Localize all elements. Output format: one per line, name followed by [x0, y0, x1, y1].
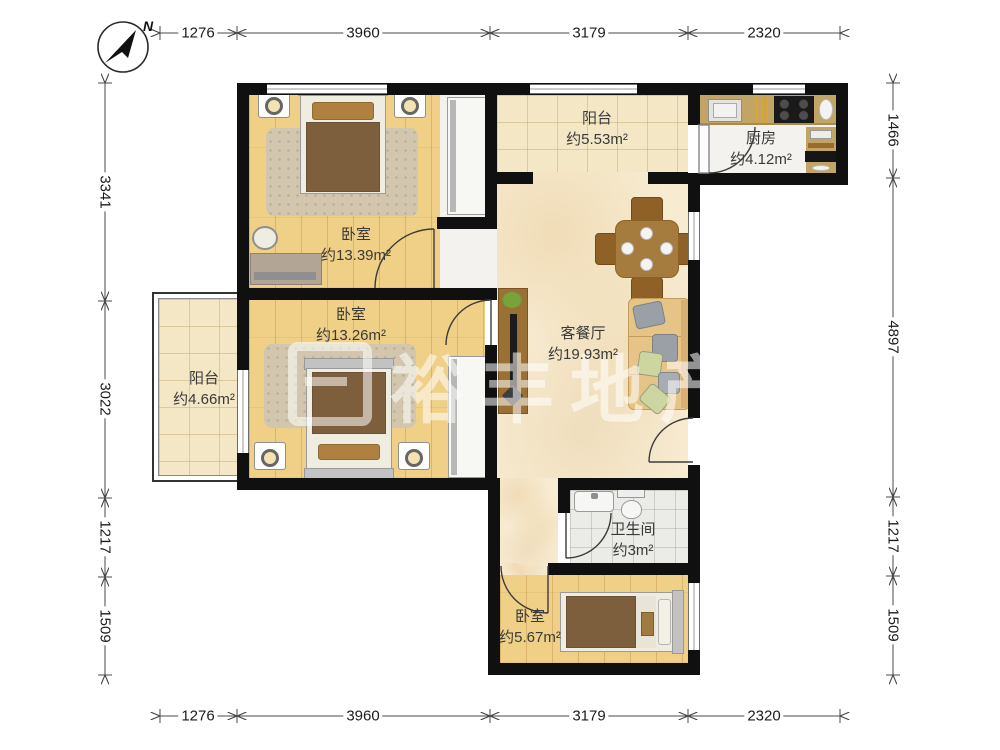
lamp-icon [261, 449, 279, 467]
dim-label: 2320 [744, 708, 783, 725]
room-name: 卫生间 [563, 519, 703, 540]
bed-blanket [306, 122, 380, 192]
plate-icon [660, 242, 673, 255]
dim-label: 1466 [885, 110, 902, 149]
wall [648, 172, 688, 184]
dim-label: 4897 [885, 317, 902, 356]
compass-north-label: N [143, 18, 154, 34]
toilet-bowl [621, 500, 642, 519]
room-label-bathroom: 卫生间 约3m² [563, 519, 703, 561]
dim-label: 1509 [97, 606, 114, 645]
room-area: 约13.26m² [281, 325, 421, 346]
bed-pillow [318, 444, 380, 460]
room-area: 约3m² [563, 540, 703, 561]
lamp-icon [265, 97, 283, 115]
wall [485, 95, 497, 229]
wall [558, 490, 570, 513]
door-opening-entry [688, 418, 700, 465]
floor-plan: N 1276 3960 3179 2320 1276 3960 3179 232… [0, 0, 1000, 750]
room-name: 客餐厅 [513, 323, 653, 344]
wall [488, 663, 700, 675]
hallway-floor-2 [500, 563, 548, 575]
dim-label: 3022 [97, 379, 114, 418]
utensils-icon [756, 98, 769, 123]
room-name: 阳台 [134, 368, 274, 389]
plate-icon [640, 258, 653, 271]
room-label-balcony-top: 阳台 约5.53m² [527, 108, 667, 150]
dish-icon [819, 99, 833, 120]
wall [548, 563, 700, 575]
wall [485, 345, 497, 480]
room-name: 卧室 [281, 304, 421, 325]
room-name: 卧室 [460, 606, 600, 627]
bed-pillow [312, 102, 374, 120]
window [688, 212, 700, 260]
room-area: 约4.12m² [691, 149, 831, 170]
dim-label: 1276 [178, 25, 217, 42]
window [530, 84, 637, 94]
room-area: 约5.67m² [460, 627, 600, 648]
dim-label: 3960 [343, 25, 382, 42]
dim-label: 3960 [343, 708, 382, 725]
room-label-bedroom-small: 卧室 约5.67m² [460, 606, 600, 648]
wall [437, 217, 497, 229]
lamp-icon [405, 449, 423, 467]
window [688, 583, 700, 650]
dim-label: 1217 [97, 517, 114, 556]
wardrobe [447, 97, 489, 215]
room-area: 约13.39m² [286, 245, 426, 266]
door-opening-bedroom-mid [485, 300, 497, 345]
room-label-living: 客餐厅 约19.93m² [513, 323, 653, 365]
dim-label: 3341 [97, 172, 114, 211]
nightstand [254, 442, 286, 470]
bed-pillow [658, 599, 671, 645]
bed-bag [641, 612, 654, 636]
room-label-balcony-left: 阳台 约4.66m² [134, 368, 274, 410]
wardrobe-slider [451, 359, 457, 475]
dim-label: 2320 [744, 25, 783, 42]
dim-label: 1509 [885, 605, 902, 644]
hallway-floor [500, 478, 558, 563]
room-name: 卧室 [286, 224, 426, 245]
room-label-bedroom-mid: 卧室 约13.26m² [281, 304, 421, 346]
toilet-tank [617, 489, 645, 498]
dim-label: 3179 [569, 25, 608, 42]
wall [700, 173, 848, 185]
wall [558, 478, 700, 490]
dim-label: 1217 [885, 516, 902, 555]
room-label-kitchen: 厨房 约4.12m² [691, 128, 831, 170]
wall [237, 288, 497, 300]
room-name: 阳台 [527, 108, 667, 129]
wall [836, 95, 848, 185]
wall [237, 478, 500, 490]
wall [485, 172, 533, 184]
room-label-bedroom-top: 卧室 约13.39m² [286, 224, 426, 266]
stove [774, 96, 814, 123]
bed-blanket [312, 372, 386, 434]
window [267, 84, 387, 94]
wardrobe [448, 356, 488, 478]
compass-icon [98, 22, 148, 72]
lamp-icon [401, 97, 419, 115]
bed-headboard [672, 590, 684, 654]
plate-icon [621, 242, 634, 255]
plant-icon [502, 292, 522, 308]
room-name: 厨房 [691, 128, 831, 149]
dim-label: 1276 [178, 708, 217, 725]
nightstand [398, 442, 430, 470]
room-area: 约19.93m² [513, 344, 653, 365]
room-area: 约4.66m² [134, 389, 274, 410]
kitchen-sink-basin [713, 103, 737, 118]
wardrobe-slider [450, 100, 456, 212]
window [753, 84, 805, 94]
stool [252, 226, 278, 250]
room-area: 约5.53m² [527, 129, 667, 150]
dresser-top [254, 272, 316, 280]
faucet-icon [591, 493, 598, 499]
dim-label: 3179 [569, 708, 608, 725]
plate-icon [640, 227, 653, 240]
